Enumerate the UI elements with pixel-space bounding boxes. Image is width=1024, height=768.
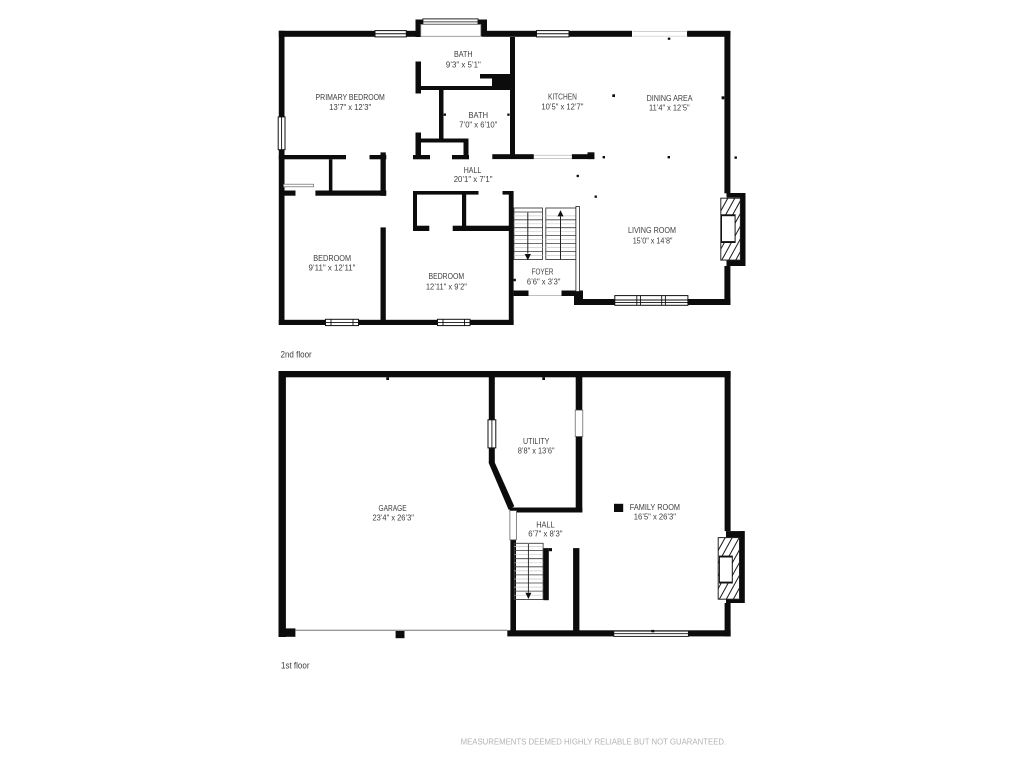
svg-text:FOYER: FOYER [532,267,554,276]
svg-text:8’8" x 13’6": 8’8" x 13’6" [518,446,555,455]
svg-text:HALL: HALL [464,166,482,175]
svg-text:23’4" x 26’3": 23’4" x 26’3" [372,514,414,523]
svg-text:UTILITY: UTILITY [523,437,550,446]
svg-text:9’3" x 5’1": 9’3" x 5’1" [446,60,481,69]
svg-text:15’0" x 14’8": 15’0" x 14’8" [633,237,673,246]
svg-text:HALL: HALL [536,520,555,529]
svg-text:16’5" x 26’3": 16’5" x 26’3" [634,513,676,522]
svg-text:BEDROOM: BEDROOM [313,254,351,263]
svg-text:2nd floor: 2nd floor [281,350,312,360]
svg-text:PRIMARY BEDROOM: PRIMARY BEDROOM [316,93,385,102]
svg-text:6’7" x 8’3": 6’7" x 8’3" [528,530,562,539]
svg-text:11’4" x 12’5": 11’4" x 12’5" [649,103,690,112]
svg-text:12’11" x 9’2": 12’11" x 9’2" [426,282,467,291]
svg-text:FAMILY ROOM: FAMILY ROOM [630,503,680,512]
svg-text:MEASUREMENTS DEEMED HIGHLY REL: MEASUREMENTS DEEMED HIGHLY RELIABLE BUT … [461,738,727,747]
svg-text:10’5" x 12’7": 10’5" x 12’7" [541,102,583,111]
svg-text:LIVING ROOM: LIVING ROOM [628,226,676,235]
svg-text:BATH: BATH [469,111,489,120]
svg-text:1st floor: 1st floor [281,661,310,671]
svg-text:7’0" x 6’10": 7’0" x 6’10" [459,121,497,130]
svg-text:KITCHEN: KITCHEN [548,93,577,102]
svg-text:BEDROOM: BEDROOM [429,272,465,281]
svg-text:BATH: BATH [454,50,473,59]
svg-text:20’1" x 7’1": 20’1" x 7’1" [454,175,493,184]
svg-text:6’6" x 3’3": 6’6" x 3’3" [527,277,561,286]
svg-text:DINING AREA: DINING AREA [647,94,693,103]
svg-text:GARAGE: GARAGE [379,504,408,513]
svg-text:13’7" x 12’3": 13’7" x 12’3" [329,103,371,112]
svg-text:9’11" x 12’11": 9’11" x 12’11" [309,264,356,273]
